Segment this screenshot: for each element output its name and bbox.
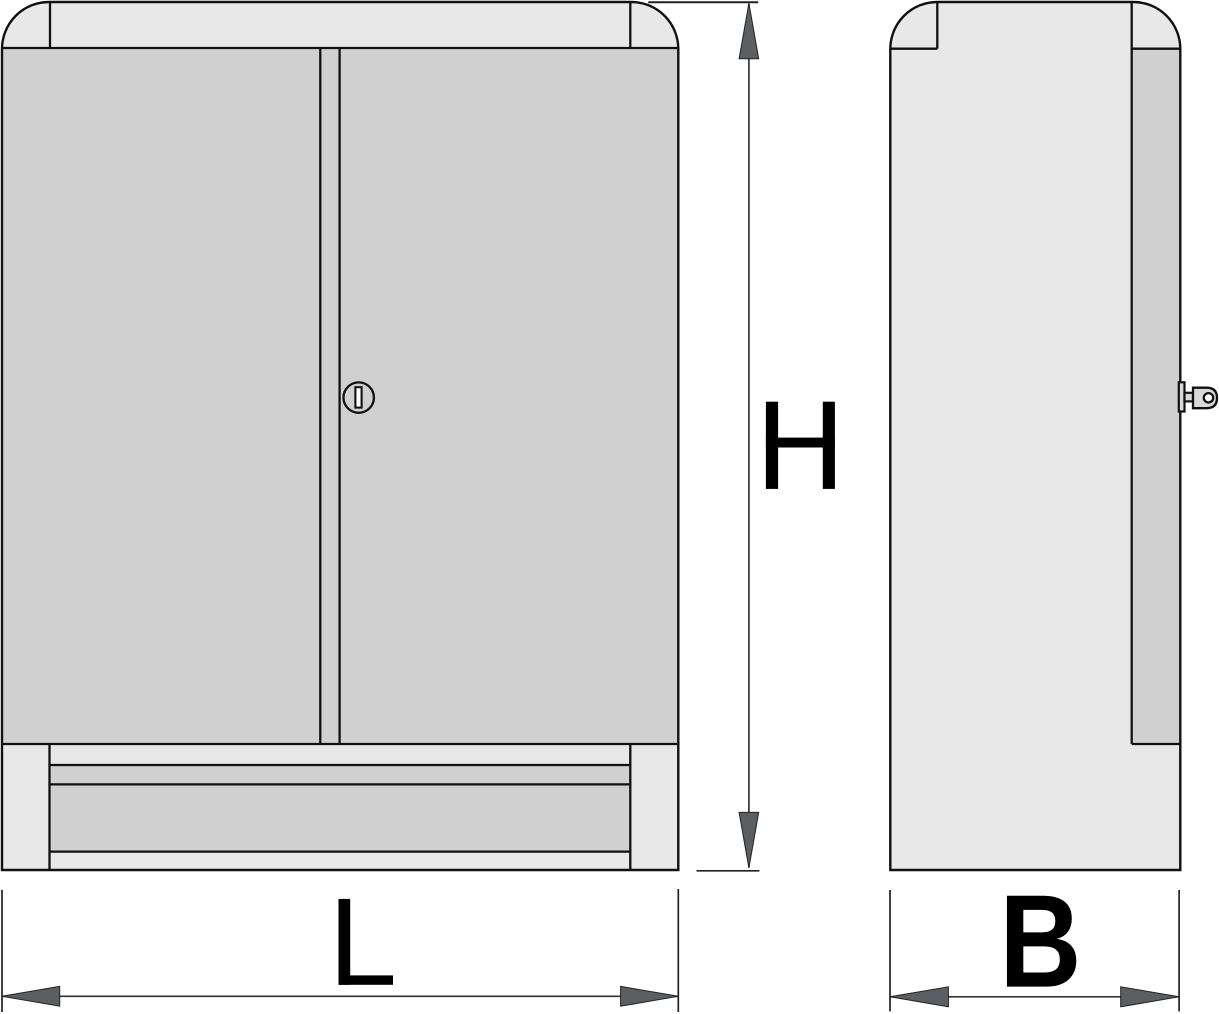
svg-text:B: B	[999, 868, 1081, 1014]
